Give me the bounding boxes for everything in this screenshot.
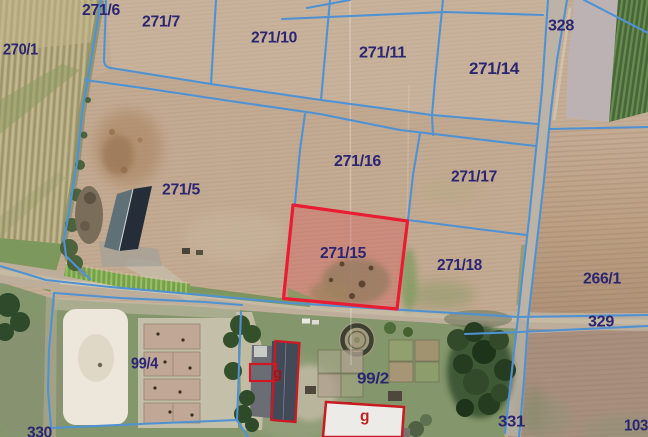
svg-text:331: 331 (498, 414, 525, 431)
svg-text:271/7: 271/7 (142, 14, 180, 31)
svg-text:271/10: 271/10 (251, 30, 297, 47)
svg-text:271/16: 271/16 (334, 153, 381, 170)
svg-text:329: 329 (588, 314, 614, 331)
svg-text:99/2: 99/2 (357, 371, 389, 388)
svg-text:266/1: 266/1 (583, 271, 621, 288)
svg-text:330: 330 (27, 425, 52, 437)
svg-text:99/4: 99/4 (131, 356, 158, 373)
svg-text:103: 103 (624, 418, 648, 435)
svg-text:271/14: 271/14 (469, 60, 520, 78)
svg-text:270/1: 270/1 (3, 42, 38, 59)
svg-text:271/11: 271/11 (359, 45, 406, 62)
svg-text:271/5: 271/5 (162, 182, 200, 199)
svg-text:328: 328 (548, 18, 574, 35)
svg-text:271/18: 271/18 (437, 257, 482, 274)
svg-text:271/15: 271/15 (320, 245, 366, 262)
svg-text:g: g (273, 365, 282, 382)
svg-text:271/17: 271/17 (451, 169, 497, 186)
svg-text:271/6: 271/6 (82, 2, 120, 19)
svg-text:g: g (360, 408, 369, 425)
